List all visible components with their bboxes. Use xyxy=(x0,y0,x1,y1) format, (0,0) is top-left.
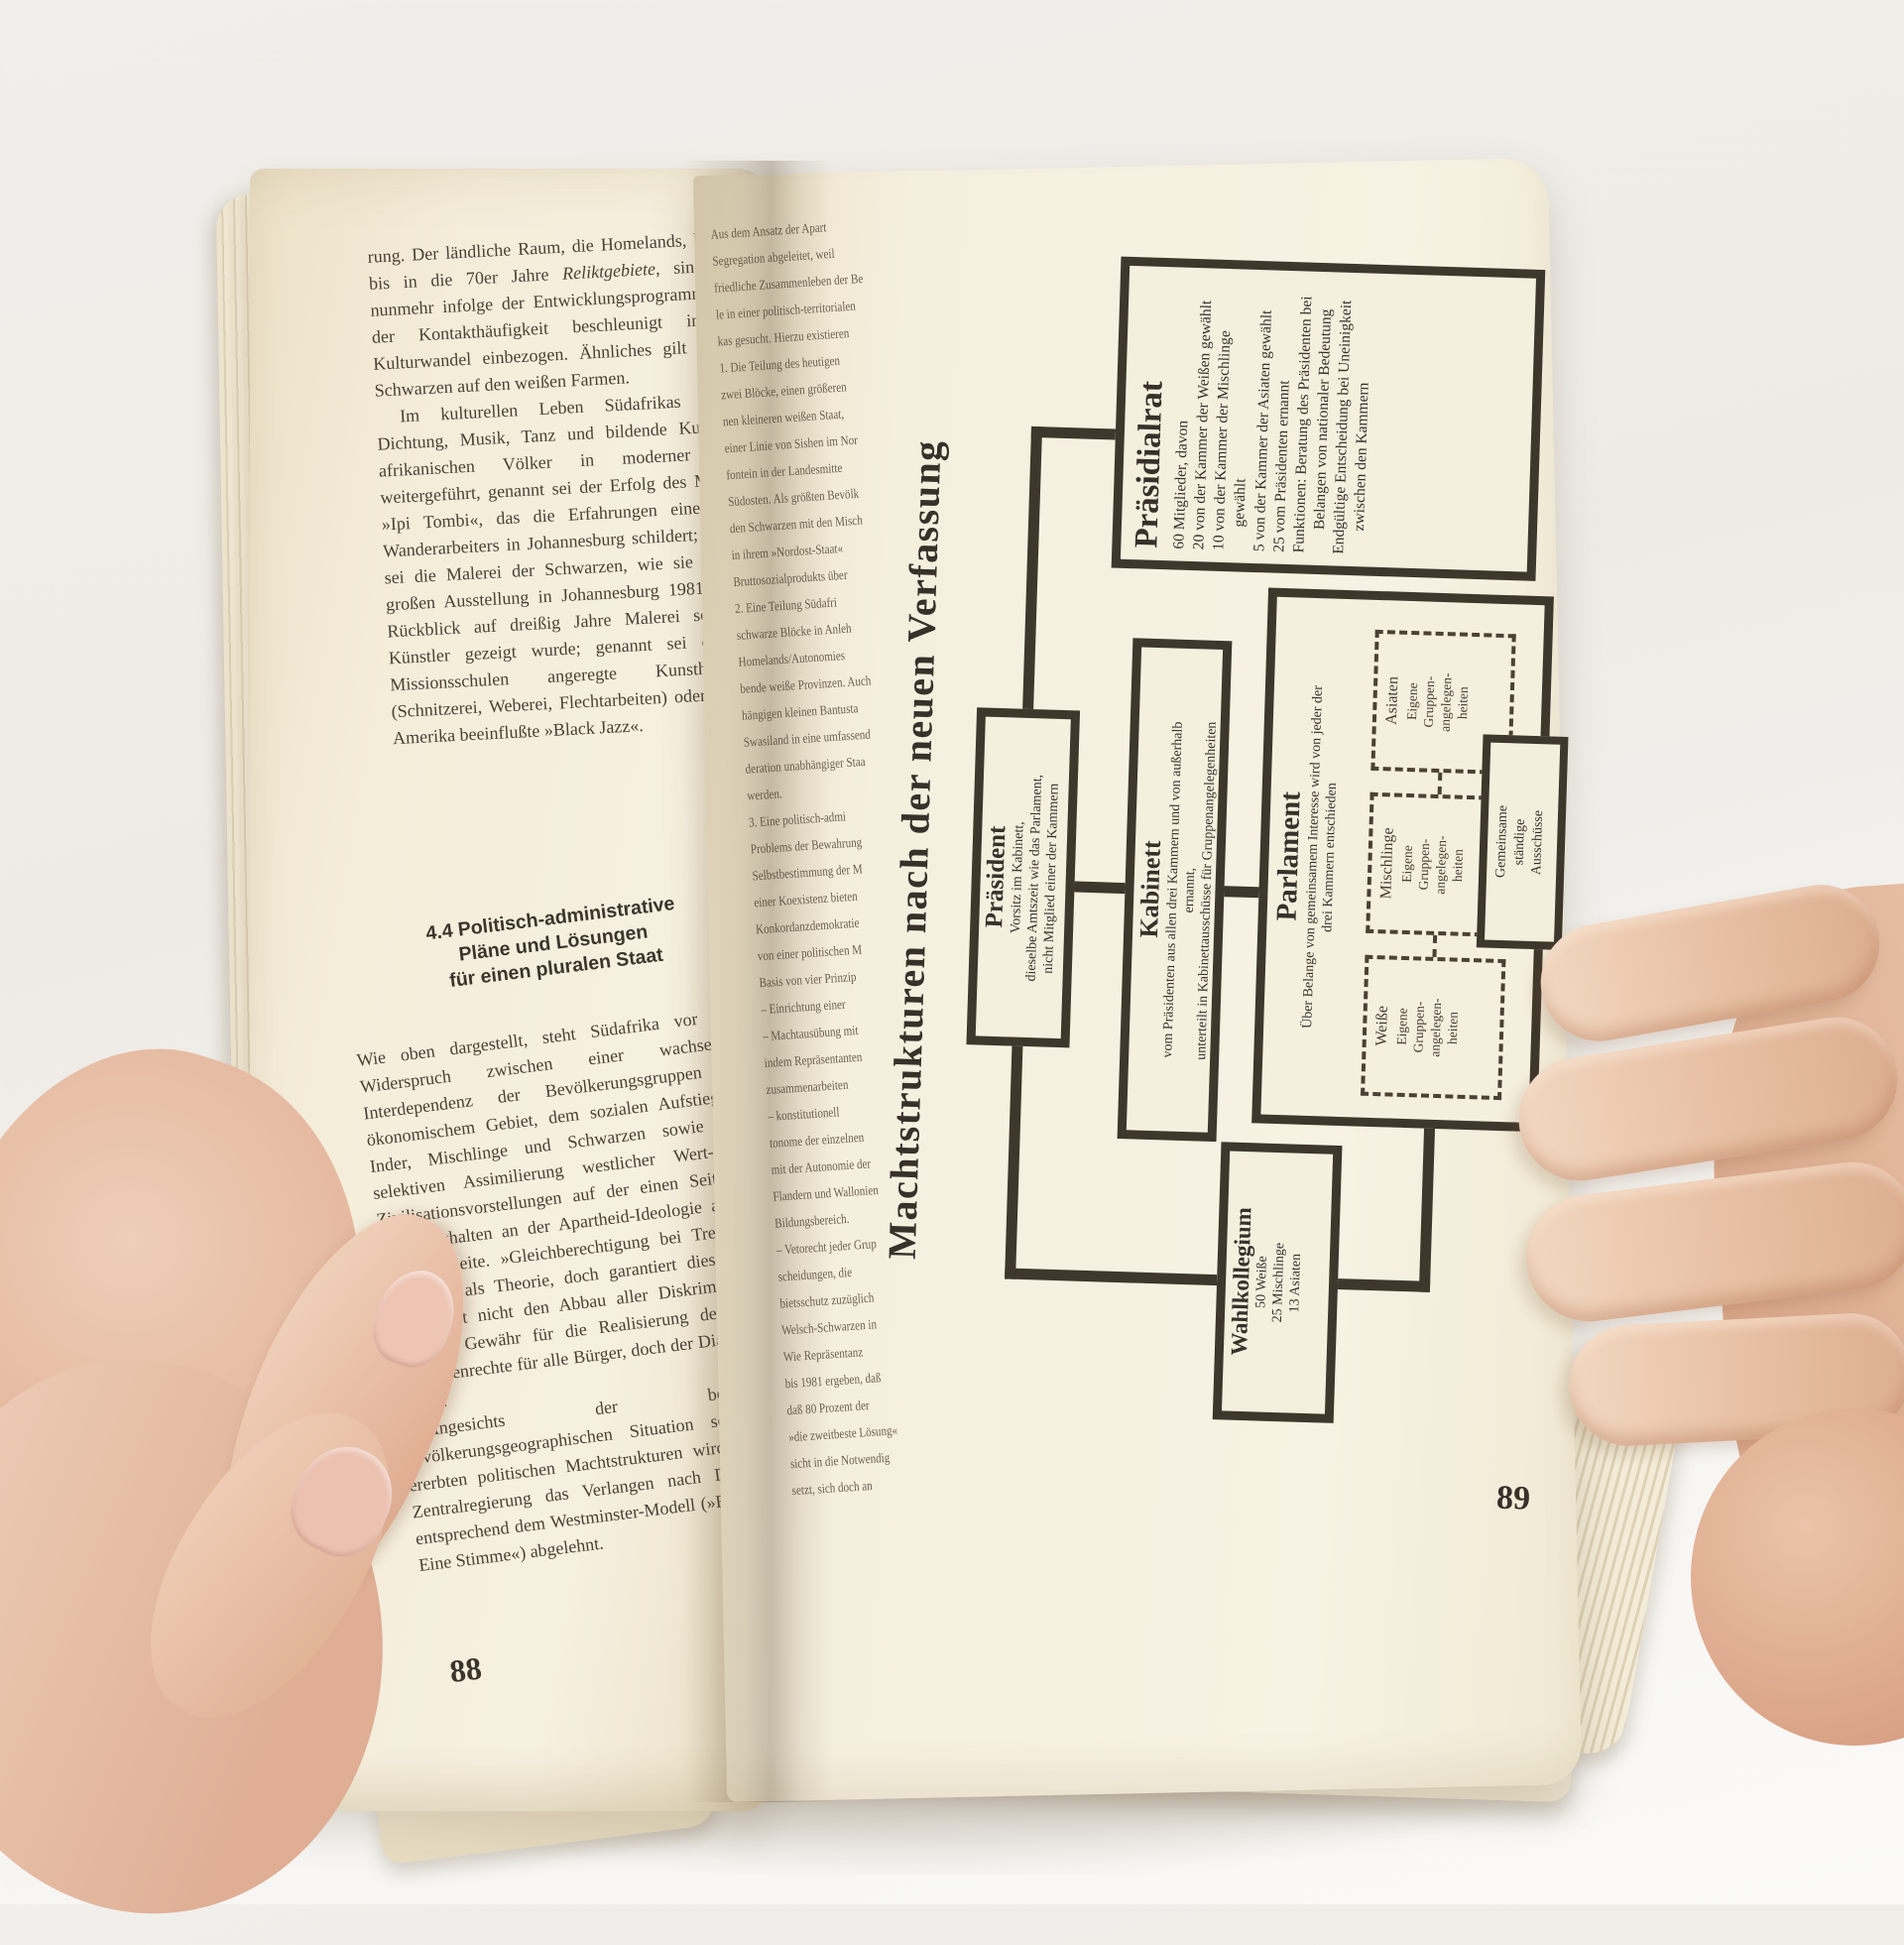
praesidialrat-lines: 60 Mitglieder, davon20 von der Kammer de… xyxy=(1169,277,1377,554)
connector-wahlkollegium-parlament-h xyxy=(1419,1126,1435,1292)
box-kabinett: Kabinett vom Präsidenten aus allen drei … xyxy=(1118,638,1233,1142)
chamber-box-weisse: Weiße EigeneGruppen-angelegen-heiten xyxy=(1361,955,1505,1100)
chamber-connector xyxy=(1438,773,1443,794)
connector-praesident-kabinett xyxy=(1072,881,1125,894)
praesident-lines: Vorsitz im Kabinett,dieselbe Amtszeit wi… xyxy=(1006,718,1065,1038)
connector-to-praesidialrat xyxy=(1031,426,1116,440)
text-line: heiten xyxy=(1453,636,1474,769)
box-wahlkollegium: Wahlkollegium 50 Weiße25 Mischlinge13 As… xyxy=(1213,1142,1343,1423)
italic-term: Reliktgebiete xyxy=(562,259,656,284)
chamber-lines: EigeneGruppen-angelegen-heiten xyxy=(1392,960,1464,1095)
box-praesidialrat: Präsidialrat 60 Mitglieder, davon20 von … xyxy=(1112,257,1546,581)
chamber-lines: EigeneGruppen-angelegen-heiten xyxy=(1402,635,1474,770)
wahlkollegium-lines: 50 Weiße25 Mischlinge13 Asiaten xyxy=(1250,1152,1309,1412)
text-line: Endgültige Entscheidung bei Uneinigkeit … xyxy=(1329,283,1377,555)
right-page: Aus dem Ansatz der ApartSegregation abge… xyxy=(693,158,1582,1802)
constitution-diagram: Machtstrukturen nach der neuen Verfassun… xyxy=(862,244,1584,1475)
text-line: heiten xyxy=(1443,961,1464,1094)
connector-kabinett-parlament xyxy=(1222,886,1258,898)
committee-box: GemeinsameständigeAusschüsse xyxy=(1477,734,1569,950)
page-number-89: 89 xyxy=(1495,1480,1530,1519)
connector-to-wahlkollegium xyxy=(1005,1268,1217,1285)
text-line: heiten xyxy=(1448,798,1469,931)
box-parlament: Parlament Über Belange von gemeinsamem I… xyxy=(1251,587,1554,1132)
box-praesident: Präsident Vorsitz im Kabinett,dieselbe A… xyxy=(966,707,1080,1047)
chamber-connector xyxy=(1432,935,1437,957)
right-hand-knuckles xyxy=(1691,1408,1904,1746)
praesidialrat-heading: Präsidialrat xyxy=(1129,276,1174,548)
connector-wahlkollegium-parlament-v xyxy=(1336,1278,1430,1292)
chamber-lines: EigeneGruppen-angelegen-heiten xyxy=(1397,797,1469,932)
section-heading: 4.4 Politisch-administrativePläne und Lö… xyxy=(401,889,707,999)
